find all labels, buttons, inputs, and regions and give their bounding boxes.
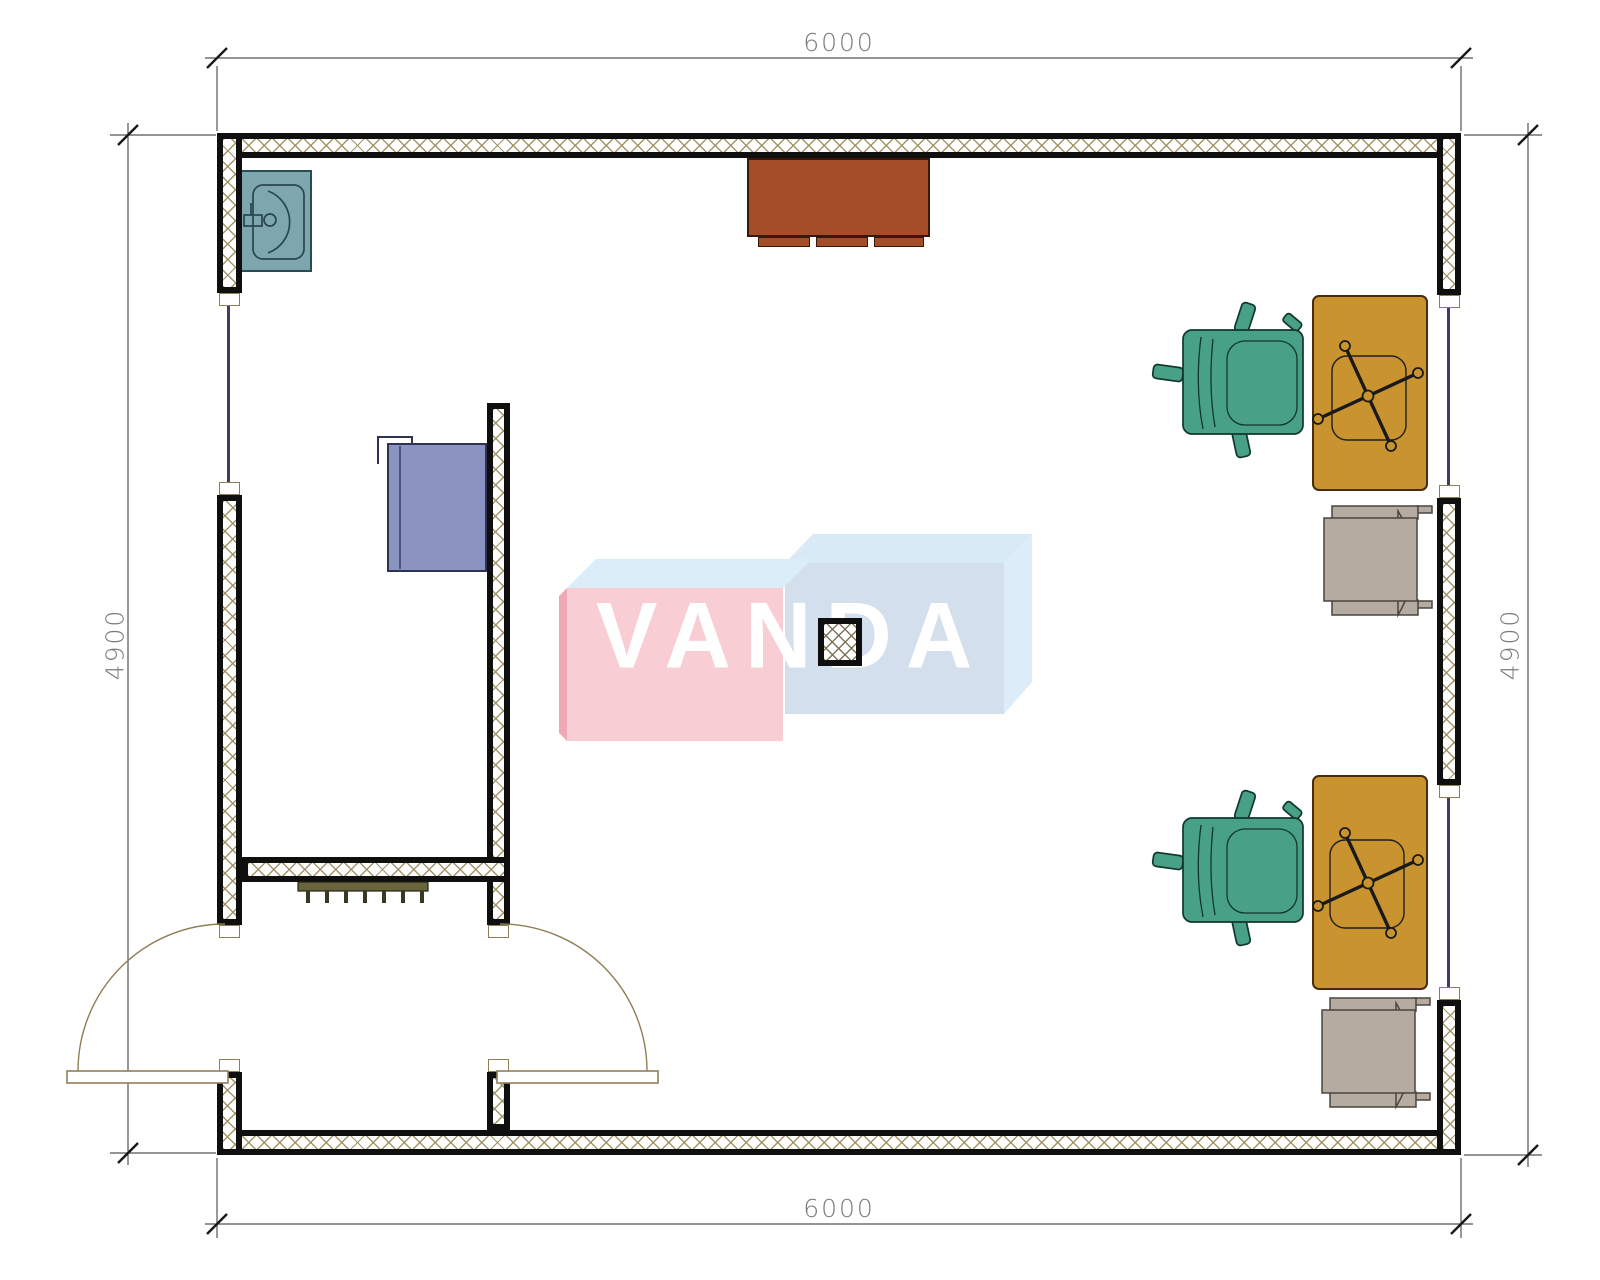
jamb [219, 482, 240, 495]
jamb [219, 925, 240, 938]
wall-bottom [217, 1130, 1461, 1155]
table-foot [874, 237, 924, 247]
jamb [219, 1059, 240, 1072]
wall-interior-vertical [487, 403, 510, 925]
jamb [1439, 987, 1460, 1000]
watermark-box-left-side [559, 588, 567, 741]
wall-left-lower-stub [217, 1072, 242, 1155]
dimension-label-bottom: 6000 [784, 1194, 894, 1223]
desk-lower [1312, 775, 1428, 990]
desk-upper [1312, 295, 1428, 491]
wall-left-upper [217, 133, 242, 293]
jamb [219, 293, 240, 306]
dimension-label-top: 6000 [784, 28, 894, 57]
wall-right-middle [1437, 498, 1461, 785]
window-right-lower [1447, 798, 1450, 987]
sideboard-table [747, 158, 930, 237]
dimension-label-right: 4900 [1496, 590, 1525, 700]
wall-top [217, 133, 1461, 158]
jamb [1439, 295, 1460, 308]
wall-right-upper [1437, 133, 1461, 295]
jamb [488, 1059, 509, 1072]
wall-interior-horizontal [242, 857, 510, 882]
jamb [1439, 485, 1460, 498]
wall-interior-lower-stub [487, 1072, 510, 1130]
structural-column [818, 618, 862, 666]
wall-left-middle [217, 495, 242, 925]
sink [240, 170, 312, 272]
storage-cabinet [387, 443, 487, 572]
dimension-label-left: 4900 [101, 590, 130, 700]
jamb [1439, 785, 1460, 798]
watermark-box-right-top [785, 534, 1032, 563]
jamb [488, 925, 509, 938]
table-foot [816, 237, 868, 247]
window-left [227, 306, 230, 482]
wall-right-lower-stub [1437, 1000, 1461, 1155]
window-right-upper [1447, 308, 1450, 485]
table-foot [758, 237, 810, 247]
watermark-logo-text: VANDA [596, 589, 1026, 683]
floor-plan-canvas: VANDA [0, 0, 1600, 1280]
